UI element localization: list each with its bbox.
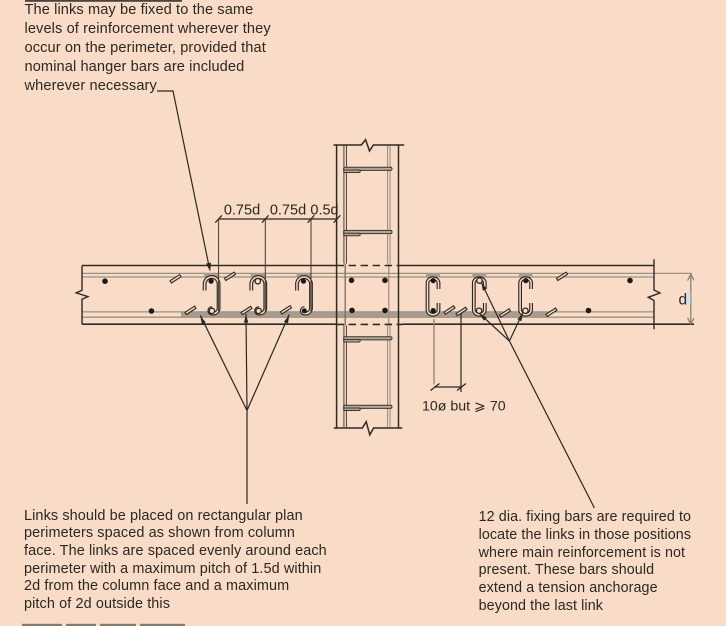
svg-text:d: d [679, 292, 688, 309]
svg-text:0.75d: 0.75d [224, 203, 260, 219]
svg-text:0.5d: 0.5d [310, 203, 338, 219]
svg-text:0.75d: 0.75d [270, 203, 306, 219]
svg-text:10ø but ⩾ 70: 10ø but ⩾ 70 [422, 399, 506, 415]
